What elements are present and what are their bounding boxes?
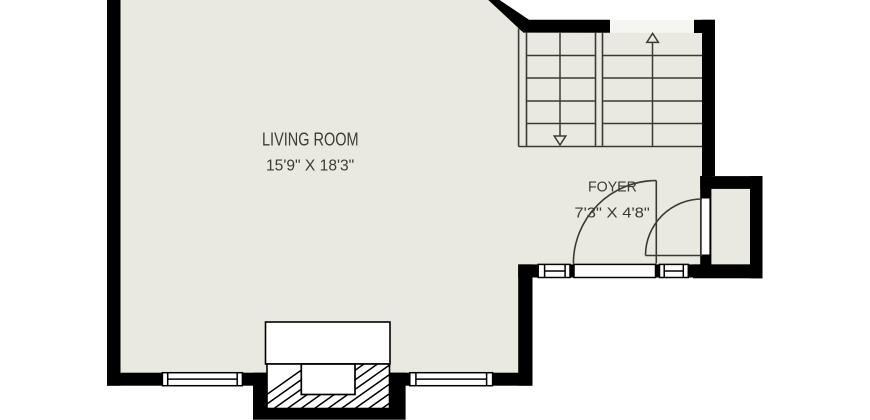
svg-text:LIVING ROOM: LIVING ROOM [262,130,359,150]
svg-text:FOYER: FOYER [588,179,637,196]
svg-text:15'9" X 18'3": 15'9" X 18'3" [266,158,354,175]
svg-text:7'3" X 4'8": 7'3" X 4'8" [574,204,649,221]
